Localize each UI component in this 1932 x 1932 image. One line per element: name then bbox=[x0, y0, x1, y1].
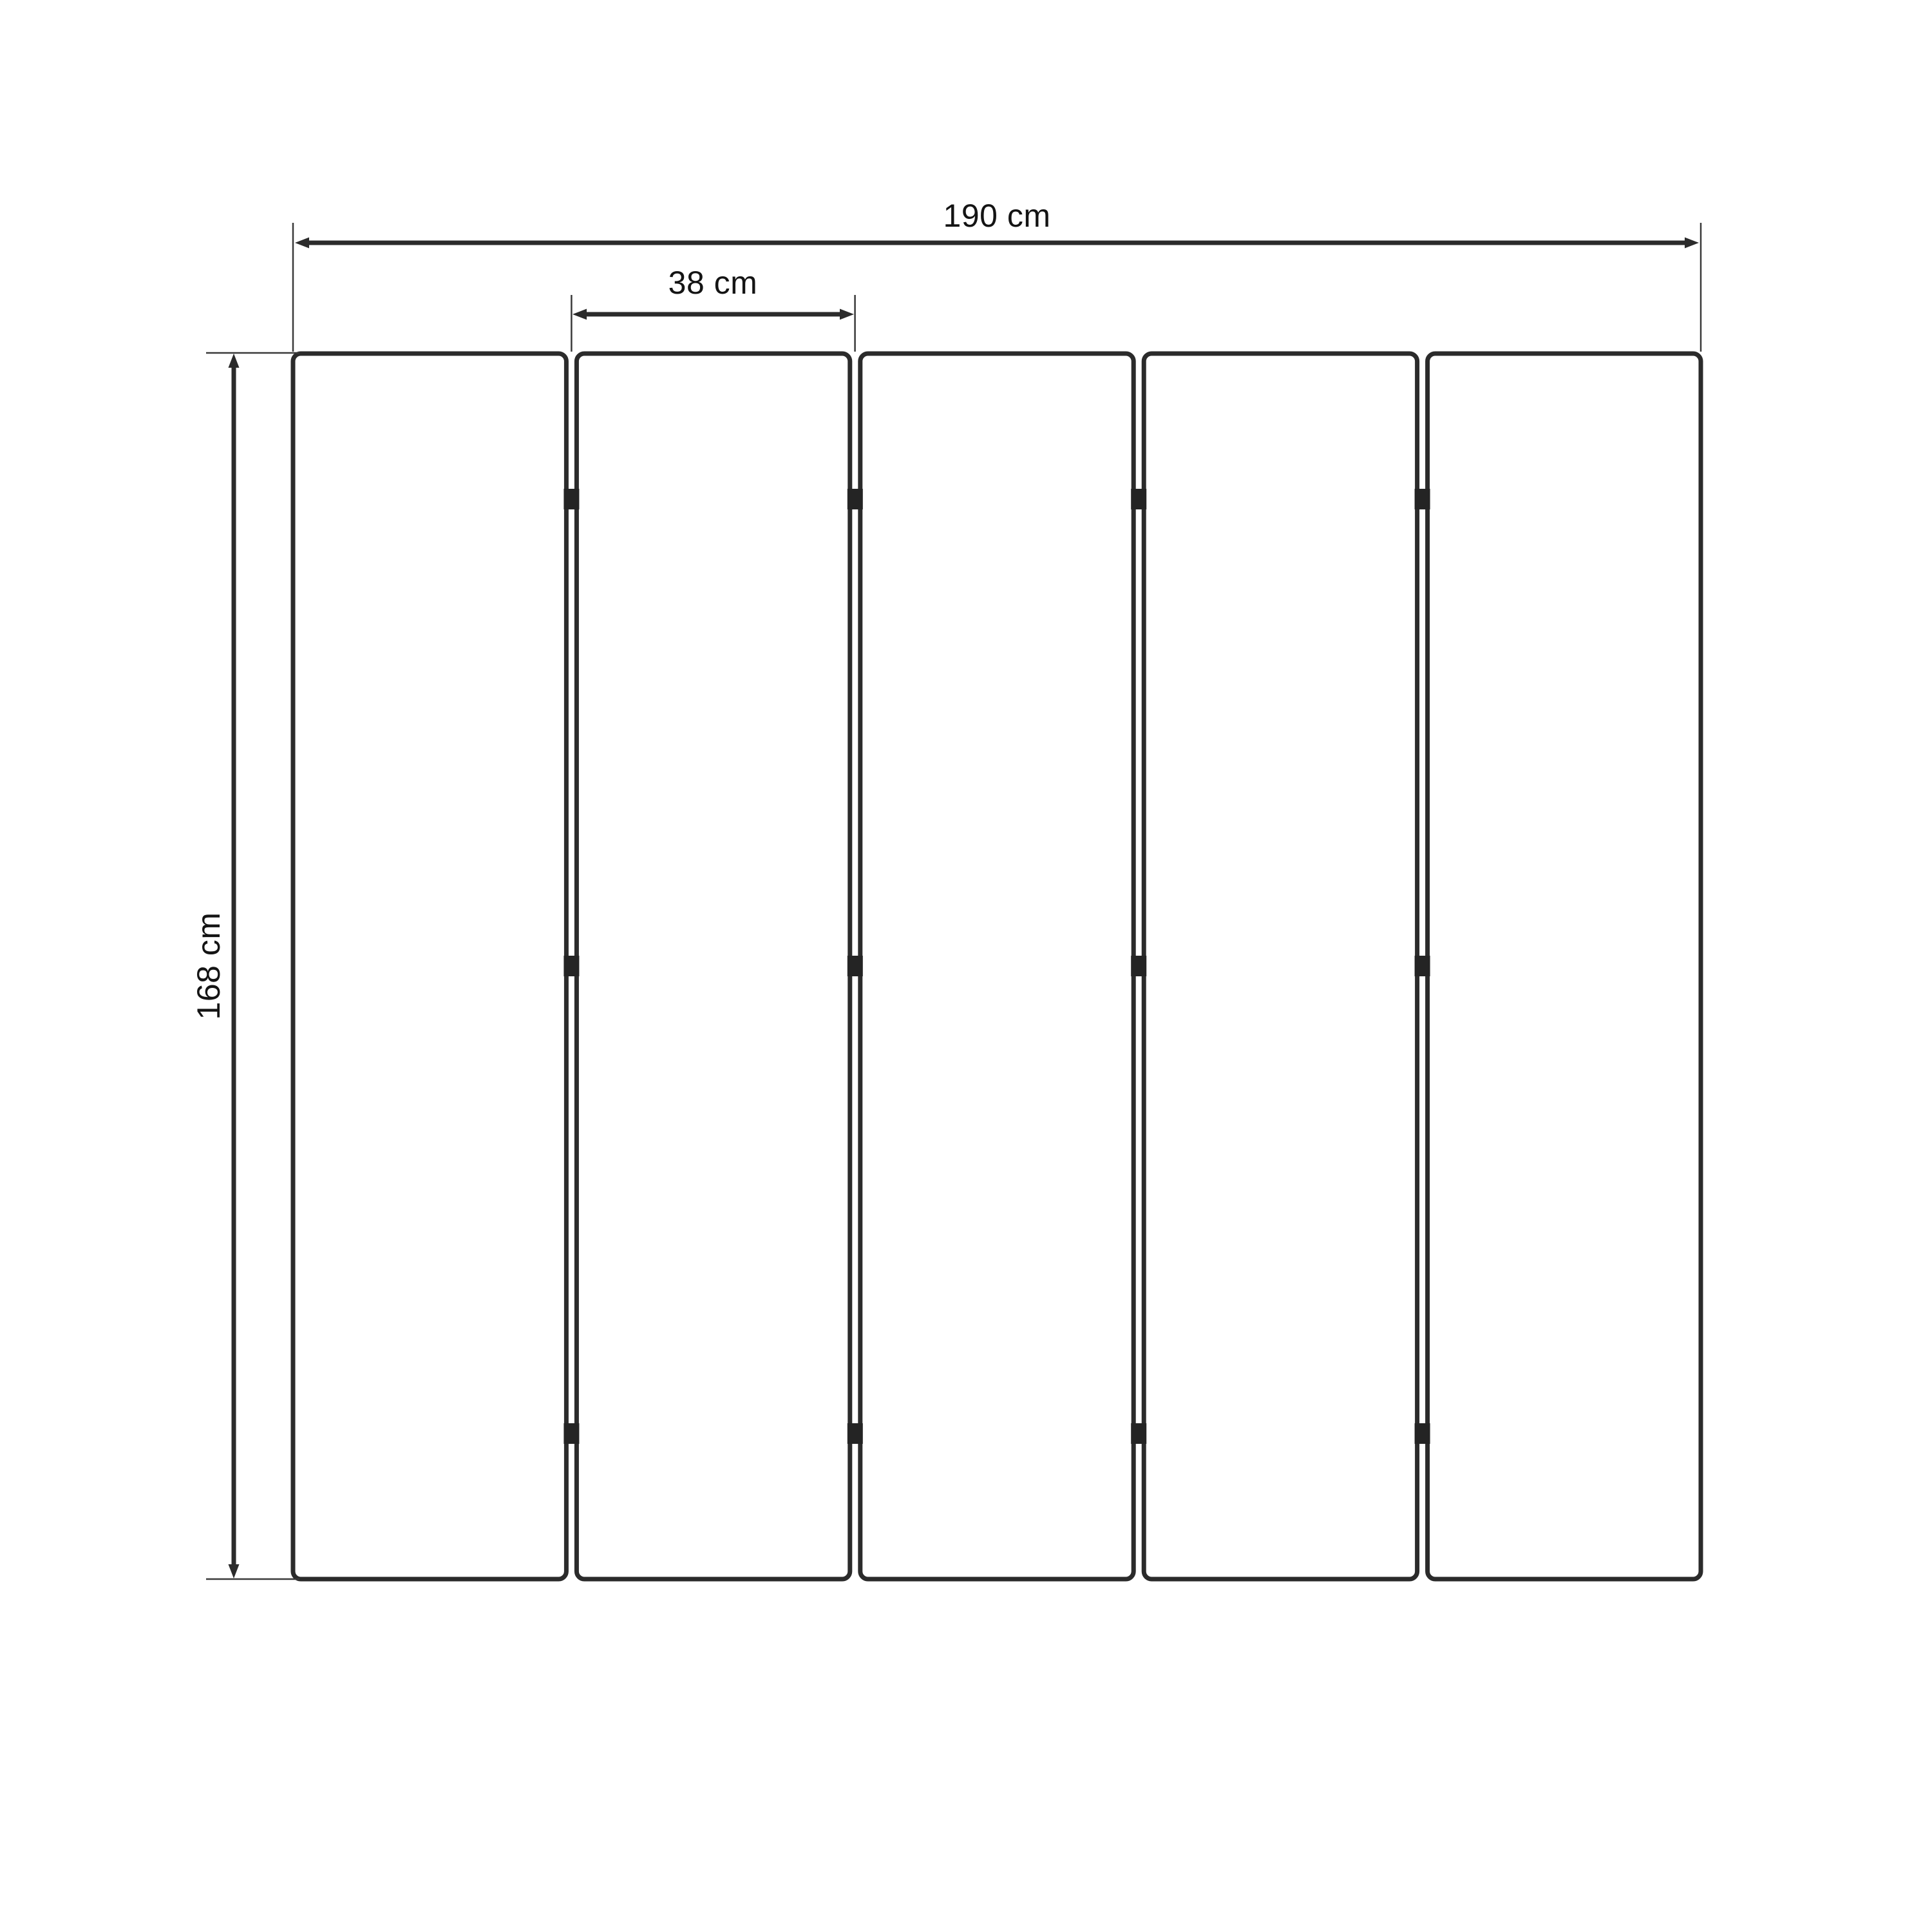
hinge-gap1-row3 bbox=[563, 1423, 579, 1444]
dimension-diagram-page: 190 cm 38 cm 168 cm bbox=[0, 0, 1932, 1932]
hinge-gap2-row1 bbox=[848, 489, 863, 509]
folding-screen-diagram: 190 cm 38 cm 168 cm bbox=[0, 0, 1932, 1932]
hinge-gap3-row1 bbox=[1131, 489, 1146, 509]
hinge-gap3-row3 bbox=[1131, 1423, 1146, 1444]
panel-width-label: 38 cm bbox=[668, 265, 758, 301]
arrow-up-icon bbox=[229, 354, 240, 368]
height-label: 168 cm bbox=[191, 913, 227, 1020]
panel-3 bbox=[860, 354, 1133, 1579]
total-width-dimension: 190 cm bbox=[293, 198, 1701, 352]
height-dimension: 168 cm bbox=[191, 353, 299, 1579]
panel-2 bbox=[576, 354, 849, 1579]
arrow-left-icon bbox=[295, 238, 309, 249]
panel-5 bbox=[1428, 354, 1701, 1579]
hinge-gap4-row3 bbox=[1415, 1423, 1430, 1444]
arrow-right-icon bbox=[840, 309, 854, 320]
panel-1 bbox=[293, 354, 566, 1579]
hinge-gap1-row2 bbox=[563, 956, 579, 976]
panel-4 bbox=[1144, 354, 1417, 1579]
hinge-gap4-row2 bbox=[1415, 956, 1430, 976]
panels bbox=[293, 354, 1701, 1579]
hinge-gap1-row1 bbox=[563, 489, 579, 509]
hinge-gap4-row1 bbox=[1415, 489, 1430, 509]
arrow-left-icon bbox=[573, 309, 587, 320]
arrow-down-icon bbox=[229, 1564, 240, 1578]
total-width-label: 190 cm bbox=[943, 198, 1051, 234]
panel-width-dimension: 38 cm bbox=[571, 265, 855, 352]
hinge-gap2-row2 bbox=[848, 956, 863, 976]
arrow-right-icon bbox=[1685, 238, 1699, 249]
hinge-gap2-row3 bbox=[848, 1423, 863, 1444]
hinge-gap3-row2 bbox=[1131, 956, 1146, 976]
